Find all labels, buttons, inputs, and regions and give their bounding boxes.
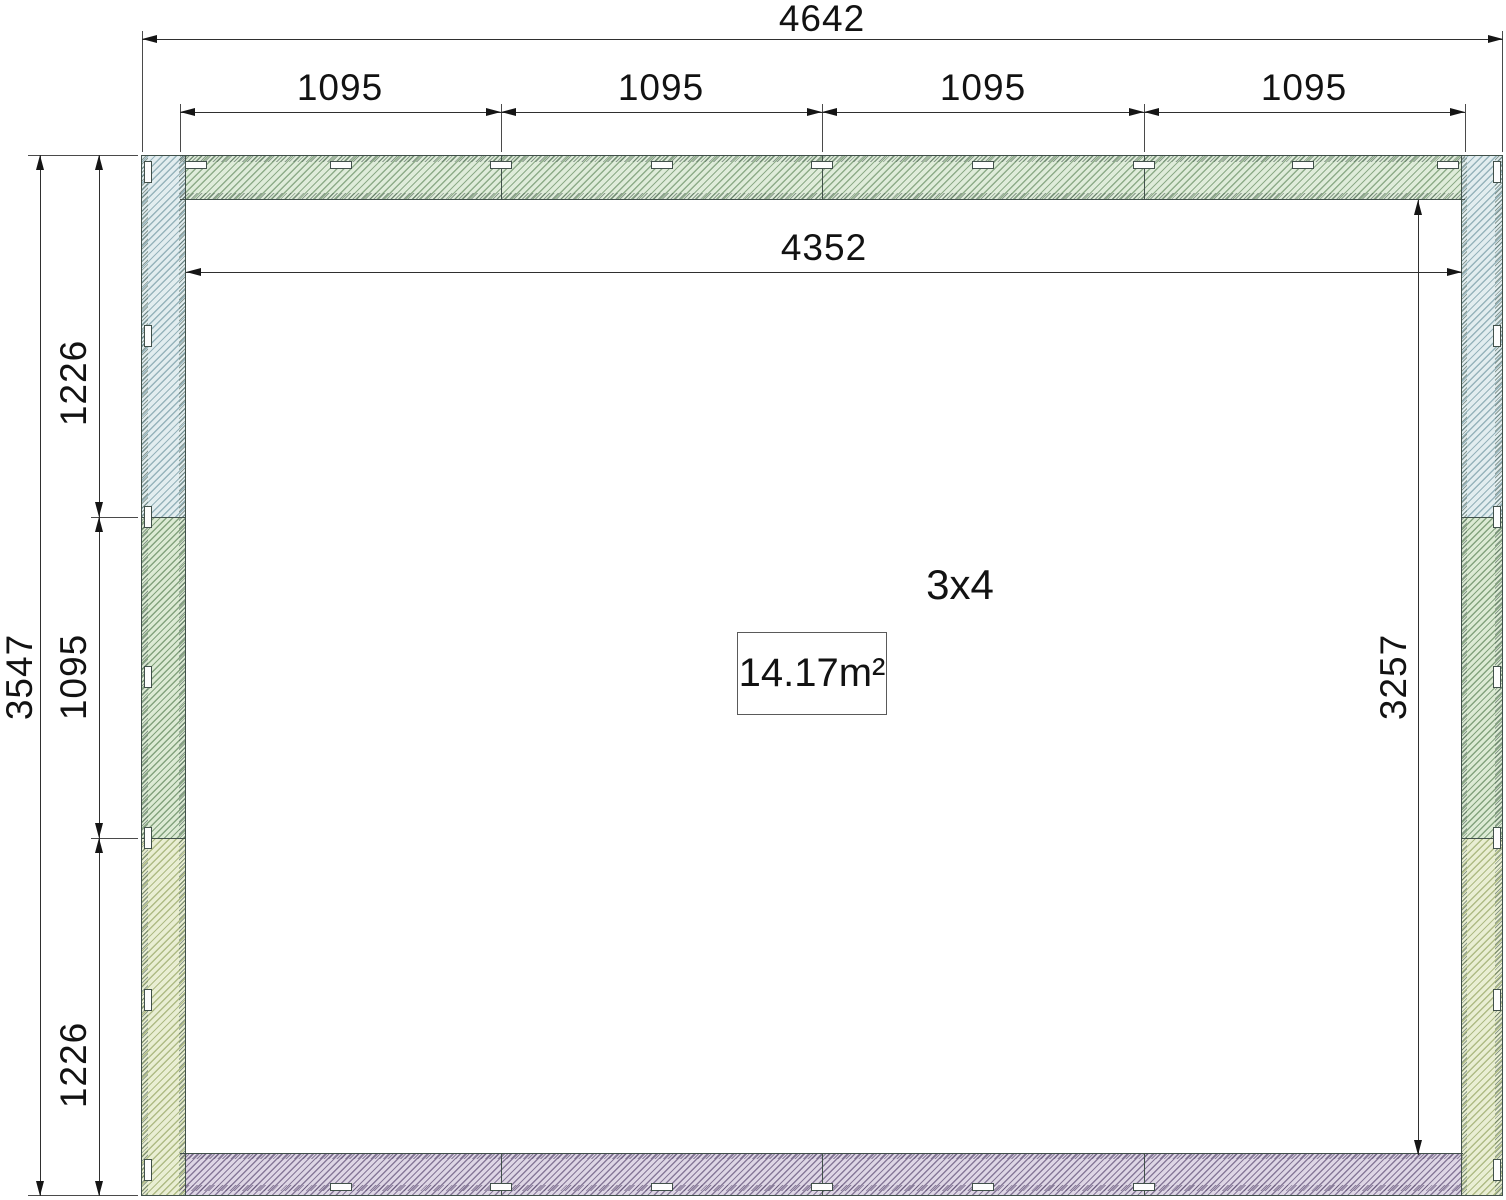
dim-arrow (142, 35, 157, 43)
tenon-mark (185, 161, 207, 169)
tenon-mark (1493, 325, 1501, 347)
tenon-mark (144, 325, 152, 347)
tenon-mark (1133, 161, 1155, 169)
tenon-mark (144, 1159, 152, 1181)
dim-overall-width-label: 4642 (622, 0, 1022, 38)
dim-arrow (486, 108, 501, 116)
tenon-mark (1493, 989, 1501, 1011)
dim-left-segment-label: 1226 (53, 340, 95, 426)
dim-inner-width-label: 4352 (624, 229, 1024, 267)
room-size-label: 3x4 (880, 561, 1040, 609)
dim-top-segment-label: 1095 (883, 69, 1083, 107)
dim-line-inner-width (186, 272, 1462, 273)
tenon-mark (144, 506, 152, 528)
tenon-mark (811, 161, 833, 169)
tenon-mark (651, 1183, 673, 1191)
dim-line-overall-width (142, 39, 1503, 40)
dim-arrow (95, 1181, 103, 1196)
room-area-label: 14.17m² (739, 651, 886, 696)
dim-arrow (95, 155, 103, 170)
dim-arrow (95, 823, 103, 838)
tenon-mark (1493, 506, 1501, 528)
dim-arrow (501, 108, 516, 116)
tenon-mark (1292, 161, 1314, 169)
extension-line (1465, 104, 1466, 152)
tenon-mark (1493, 1159, 1501, 1181)
tenon-mark (330, 161, 352, 169)
dim-arrow (36, 1181, 44, 1196)
dim-top-segment-label: 1095 (561, 69, 761, 107)
room-area-box: 14.17m² (737, 632, 887, 715)
tenon-mark (1493, 666, 1501, 688)
dim-left-segment-label: 1226 (53, 1022, 95, 1108)
extension-line (1502, 31, 1503, 152)
floor-plan-canvas: 4642 1095 1095 1095 1095 4352 3547 1226 … (0, 0, 1506, 1200)
dim-inner-height-label: 3257 (1373, 634, 1415, 720)
tenon-mark (144, 666, 152, 688)
dim-line-left-segments (99, 155, 100, 1196)
dim-overall-height-label: 3547 (0, 634, 41, 720)
dim-arrow (36, 155, 44, 170)
tenon-mark (144, 989, 152, 1011)
extension-line (142, 31, 143, 152)
dim-top-segment-label: 1095 (1204, 69, 1404, 107)
wall-outline (1502, 155, 1503, 1196)
dim-arrow (186, 268, 201, 276)
tenon-mark (651, 161, 673, 169)
dim-arrow (180, 108, 195, 116)
tenon-mark (1493, 827, 1501, 849)
dim-arrow (1450, 108, 1465, 116)
dim-arrow (1488, 35, 1503, 43)
extension-line (28, 1195, 138, 1196)
wall-outline (141, 155, 142, 1196)
tenon-mark (972, 161, 994, 169)
dim-arrow (95, 502, 103, 517)
tenon-mark (330, 1183, 352, 1191)
tenon-mark (490, 161, 512, 169)
tenon-mark (490, 1183, 512, 1191)
tenon-mark (144, 161, 152, 183)
dim-arrow (822, 108, 837, 116)
dim-arrow (807, 108, 822, 116)
dim-arrow (1414, 1140, 1422, 1155)
tenon-mark (811, 1183, 833, 1191)
dim-left-segment-label: 1095 (53, 634, 95, 720)
tenon-mark (1133, 1183, 1155, 1191)
extension-line (28, 155, 138, 156)
tenon-mark (144, 827, 152, 849)
dim-arrow (95, 517, 103, 532)
dim-arrow (1447, 268, 1462, 276)
dim-line-inner-height (1418, 200, 1419, 1155)
dim-arrow (1129, 108, 1144, 116)
tenon-mark (1437, 161, 1459, 169)
tenon-mark (1493, 161, 1501, 183)
dim-arrow (1414, 200, 1422, 215)
dim-arrow (1144, 108, 1159, 116)
dim-arrow (95, 838, 103, 853)
dim-top-segment-label: 1095 (240, 69, 440, 107)
tenon-mark (972, 1183, 994, 1191)
